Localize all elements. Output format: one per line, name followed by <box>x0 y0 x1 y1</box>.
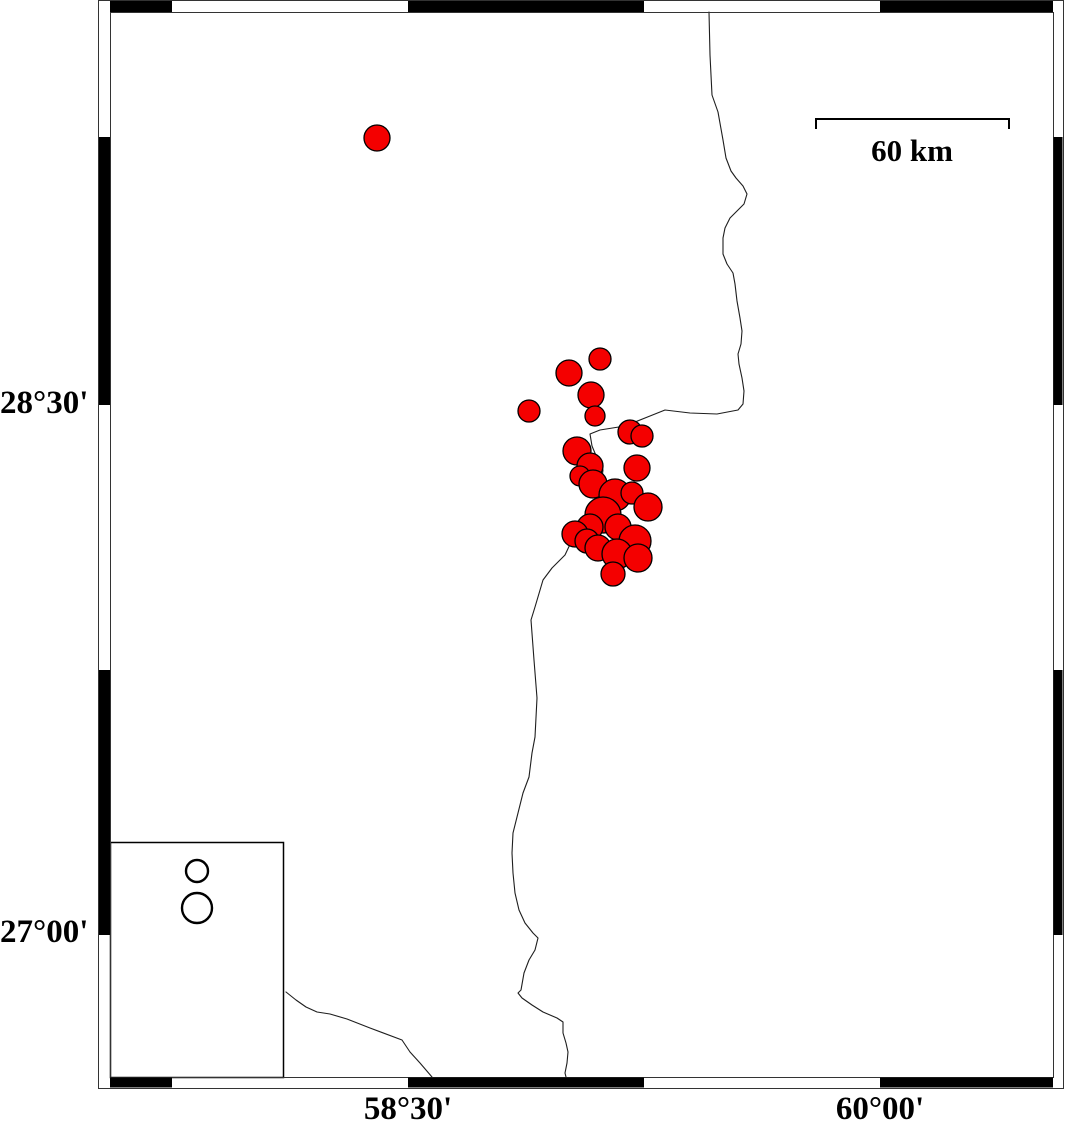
frame-tick-bottom-0 <box>110 1078 172 1088</box>
epicenter-marker-3 <box>578 382 604 408</box>
legend-symbol-circle-0 <box>186 860 208 882</box>
frame-tick-bottom-2 <box>880 1078 1053 1088</box>
latitude-label-28-30: 28°30' <box>0 386 86 420</box>
scale-bar-label: 60 km <box>812 135 1012 167</box>
frame-tick-right-1 <box>1054 670 1063 935</box>
scale-bar <box>816 119 1009 129</box>
epicenter-marker-15 <box>634 493 662 521</box>
frame-tick-top-0 <box>110 1 172 12</box>
epicenter-marker-7 <box>631 425 653 447</box>
longitude-label-58-30: 58°30' <box>308 1092 508 1125</box>
epicenter-marker-12 <box>624 455 650 481</box>
epicenter-marker-1 <box>589 348 611 370</box>
frame-tick-bottom-1 <box>408 1078 644 1088</box>
epicenter-marker-24 <box>624 544 652 572</box>
frame-tick-top-2 <box>880 1 1053 12</box>
latitude-label-27-00: 27°00' <box>0 915 86 949</box>
epicenter-marker-25 <box>601 562 625 586</box>
river-line-1 <box>286 992 432 1077</box>
frame-tick-left-1 <box>99 670 110 935</box>
map-canvas <box>0 0 1066 1125</box>
legend-symbol-circle-1 <box>182 893 212 923</box>
frame-tick-right-0 <box>1054 137 1063 405</box>
seismicity-map-figure: 28°30' 27°00' 58°30' 60°00' 60 km <box>0 0 1066 1125</box>
frame-tick-top-1 <box>408 1 644 12</box>
epicenter-marker-2 <box>556 360 582 386</box>
epicenter-marker-0 <box>364 125 390 151</box>
epicenter-marker-4 <box>518 400 540 422</box>
epicenter-marker-5 <box>585 406 605 426</box>
frame-tick-left-0 <box>99 137 110 405</box>
longitude-label-60-00: 60°00' <box>780 1092 980 1125</box>
